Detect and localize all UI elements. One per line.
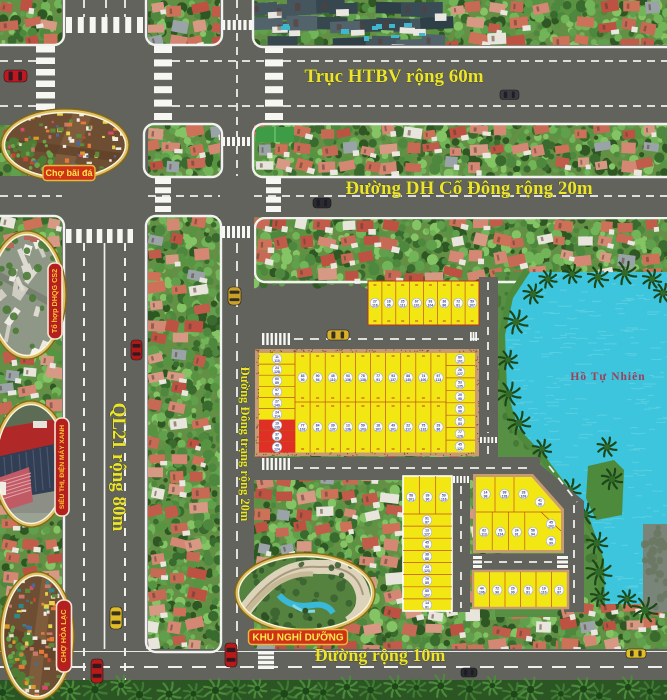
svg-text:102: 102 (548, 525, 554, 529)
svg-text:124: 124 (498, 533, 504, 537)
svg-text:113: 113 (436, 378, 442, 382)
svg-text:89: 89 (275, 381, 279, 385)
svg-text:99: 99 (549, 542, 553, 546)
svg-text:CHỢ HÒA LẠC: CHỢ HÒA LẠC (59, 609, 68, 663)
svg-text:81: 81 (456, 304, 460, 308)
svg-text:Tổ hợp DHQG CS2: Tổ hợp DHQG CS2 (50, 269, 59, 333)
svg-text:110: 110 (414, 304, 420, 308)
svg-text:113: 113 (481, 533, 487, 537)
svg-text:94: 94 (531, 533, 535, 537)
svg-text:106: 106 (479, 591, 485, 595)
svg-text:SIÊU THỊ, ĐIỆN MÁY XANH: SIÊU THỊ, ĐIỆN MÁY XANH (57, 425, 66, 509)
svg-text:116: 116 (372, 304, 378, 308)
svg-text:135: 135 (457, 385, 463, 389)
svg-text:127: 127 (457, 372, 463, 376)
svg-text:104: 104 (428, 304, 434, 308)
svg-text:Hồ Tự Nhiên: Hồ Tự Nhiên (570, 370, 645, 383)
svg-text:Đường rộng 10m: Đường rộng 10m (315, 645, 446, 665)
svg-text:90: 90 (426, 498, 430, 502)
svg-text:137: 137 (330, 428, 336, 432)
svg-text:107: 107 (424, 593, 430, 597)
svg-text:91: 91 (376, 378, 380, 382)
svg-text:98: 98 (458, 397, 462, 401)
svg-text:103: 103 (360, 428, 366, 432)
svg-text:123: 123 (424, 569, 430, 573)
svg-text:128: 128 (457, 434, 463, 438)
svg-text:88: 88 (425, 557, 429, 561)
svg-text:86: 86 (442, 304, 446, 308)
svg-text:101: 101 (457, 360, 463, 364)
svg-text:90: 90 (301, 378, 305, 382)
svg-text:KHU NGHỈ DƯỠNG: KHU NGHỈ DƯỠNG (252, 631, 343, 644)
svg-text:89: 89 (275, 437, 279, 441)
svg-text:138: 138 (360, 378, 366, 382)
svg-text:81: 81 (425, 605, 429, 609)
svg-text:137: 137 (390, 378, 396, 382)
svg-text:91: 91 (515, 533, 519, 537)
svg-text:110: 110 (274, 359, 280, 363)
svg-text:QL21 rộng 80m: QL21 rộng 80m (108, 403, 129, 532)
svg-text:87: 87 (557, 591, 561, 595)
svg-text:81: 81 (526, 591, 530, 595)
svg-text:124: 124 (274, 448, 280, 452)
svg-text:114: 114 (274, 415, 280, 419)
svg-text:107: 107 (375, 428, 381, 432)
svg-text:98: 98 (484, 495, 488, 499)
svg-text:111: 111 (400, 304, 405, 308)
svg-text:121: 121 (457, 447, 463, 451)
svg-text:101: 101 (408, 498, 414, 502)
svg-text:86: 86 (437, 428, 441, 432)
svg-text:81: 81 (316, 428, 320, 432)
svg-text:110: 110 (541, 591, 547, 595)
svg-text:94: 94 (316, 378, 320, 382)
svg-text:139: 139 (274, 426, 280, 430)
svg-text:87: 87 (425, 521, 429, 525)
svg-text:96: 96 (495, 591, 499, 595)
svg-text:Đường Đông trạng rộng 20m: Đường Đông trạng rộng 20m (238, 367, 252, 522)
svg-text:128: 128 (502, 495, 508, 499)
svg-text:83: 83 (458, 422, 462, 426)
svg-text:109: 109 (521, 495, 527, 499)
svg-text:140: 140 (405, 378, 411, 382)
svg-text:Đường DH Cổ Đông rộng 20m: Đường DH Cổ Đông rộng 20m (345, 178, 592, 199)
svg-text:101: 101 (390, 428, 396, 432)
svg-text:116: 116 (441, 498, 447, 502)
svg-text:Trục HTBV rộng 60m: Trục HTBV rộng 60m (304, 66, 483, 87)
svg-text:100: 100 (421, 378, 427, 382)
svg-text:85: 85 (425, 581, 429, 585)
svg-text:136: 136 (345, 378, 351, 382)
svg-text:102: 102 (300, 428, 306, 432)
svg-text:140: 140 (274, 404, 280, 408)
svg-text:107: 107 (469, 304, 475, 308)
svg-text:82: 82 (275, 392, 279, 396)
svg-text:117: 117 (405, 428, 411, 432)
svg-text:Chợ bãi đá: Chợ bãi đá (46, 168, 94, 178)
svg-text:96: 96 (538, 503, 542, 507)
svg-text:136: 136 (345, 428, 351, 432)
svg-text:127: 127 (424, 533, 430, 537)
svg-text:99: 99 (511, 591, 515, 595)
svg-text:96: 96 (387, 304, 391, 308)
svg-text:96: 96 (458, 410, 462, 414)
svg-text:95: 95 (425, 545, 429, 549)
svg-text:110: 110 (330, 378, 336, 382)
svg-text:132: 132 (421, 428, 427, 432)
svg-text:128: 128 (274, 370, 280, 374)
